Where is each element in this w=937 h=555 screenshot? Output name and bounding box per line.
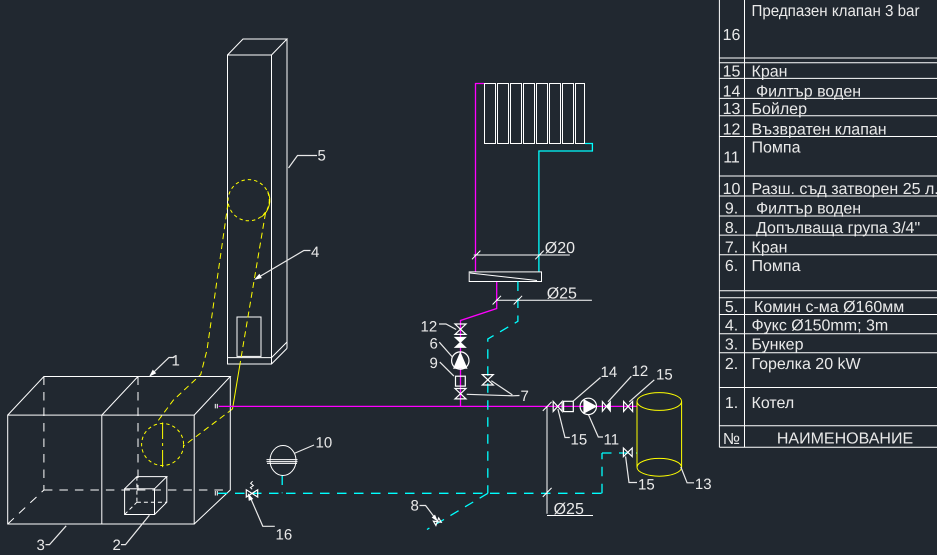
svg-text:Фукс Ø150mm; 3m: Фукс Ø150mm; 3m xyxy=(752,318,889,335)
svg-text:1: 1 xyxy=(172,353,180,370)
svg-text:Бойлер: Бойлер xyxy=(752,101,808,118)
svg-text:15: 15 xyxy=(656,367,673,384)
svg-text:2.: 2. xyxy=(725,356,738,373)
svg-text:Кран: Кран xyxy=(752,240,788,257)
svg-text:Кран: Кран xyxy=(752,63,788,80)
svg-text:16: 16 xyxy=(723,27,741,44)
svg-text:НАИМЕНОВАНИЕ: НАИМЕНОВАНИЕ xyxy=(777,431,913,448)
svg-text:16: 16 xyxy=(276,527,293,544)
svg-text:Помпа: Помпа xyxy=(752,258,801,275)
svg-text:3.: 3. xyxy=(725,337,738,354)
svg-text:6.: 6. xyxy=(725,258,738,275)
svg-text:6: 6 xyxy=(430,336,438,353)
svg-text:10: 10 xyxy=(316,435,333,452)
svg-text:4.: 4. xyxy=(725,318,738,335)
svg-text:8: 8 xyxy=(411,498,419,515)
svg-text:Горелка 20 kW: Горелка 20 kW xyxy=(752,356,862,373)
svg-text:Предпазен клапан 3 bar: Предпазен клапан 3 bar xyxy=(752,3,921,20)
svg-text:14: 14 xyxy=(601,364,618,381)
svg-text:12: 12 xyxy=(723,121,741,138)
svg-text:1.: 1. xyxy=(725,395,738,412)
svg-text:Ø25: Ø25 xyxy=(547,286,577,303)
svg-text:Филтър воден: Филтър воден xyxy=(756,83,861,100)
svg-text:Котел: Котел xyxy=(752,395,795,412)
svg-text:Комин с-ма Ø160мм: Комин с-ма Ø160мм xyxy=(754,299,904,316)
svg-text:3: 3 xyxy=(37,537,45,554)
svg-text:11: 11 xyxy=(604,432,620,449)
svg-text:№: № xyxy=(723,431,740,448)
svg-text:5: 5 xyxy=(318,148,326,165)
svg-text:4: 4 xyxy=(311,244,319,261)
svg-text:13: 13 xyxy=(723,101,741,118)
svg-text:15: 15 xyxy=(723,63,741,80)
svg-text:Помпа: Помпа xyxy=(752,140,801,157)
svg-text:2: 2 xyxy=(113,537,121,554)
svg-text:9: 9 xyxy=(430,355,438,372)
svg-text:Разш. съд затворен 25 л.: Разш. съд затворен 25 л. xyxy=(752,181,937,198)
svg-text:12: 12 xyxy=(421,319,438,336)
svg-text:Бункер: Бункер xyxy=(752,337,804,354)
svg-text:7.: 7. xyxy=(725,240,738,257)
svg-text:8.: 8. xyxy=(725,220,738,237)
svg-text:Ø20: Ø20 xyxy=(545,240,575,257)
svg-text:11: 11 xyxy=(723,150,740,167)
svg-text:15: 15 xyxy=(638,476,655,493)
svg-text:5.: 5. xyxy=(725,299,738,316)
svg-text:Допълваща група 3/4": Допълваща група 3/4" xyxy=(756,220,920,237)
svg-text:7: 7 xyxy=(521,388,529,405)
svg-text:10: 10 xyxy=(723,181,741,198)
svg-text:14: 14 xyxy=(723,83,741,100)
svg-text:Възвратен клапан: Възвратен клапан xyxy=(752,121,887,138)
svg-text:15: 15 xyxy=(571,432,588,449)
svg-text:Филтър воден: Филтър воден xyxy=(756,200,861,217)
svg-text:9.: 9. xyxy=(725,200,738,217)
svg-text:Ø25: Ø25 xyxy=(554,501,584,518)
svg-text:12: 12 xyxy=(632,363,649,380)
svg-text:13: 13 xyxy=(695,476,712,493)
